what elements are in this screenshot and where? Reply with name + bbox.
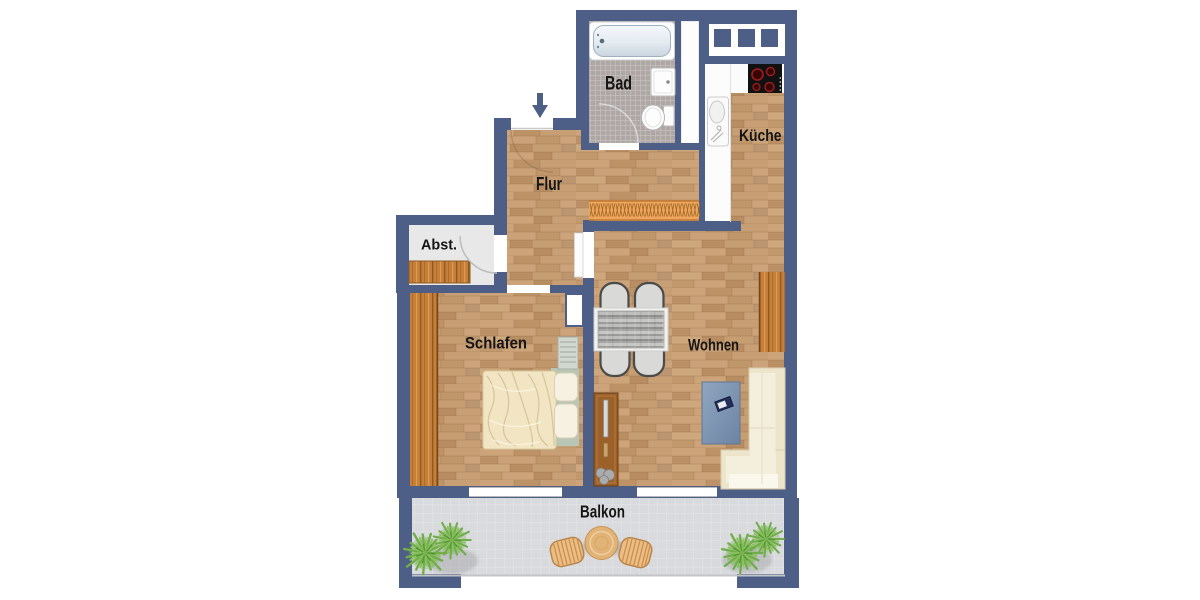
svg-text:Schlafen: Schlafen [465, 334, 527, 353]
svg-text:Wohnen: Wohnen [688, 336, 739, 355]
svg-text:Küche: Küche [739, 127, 782, 145]
svg-text:Flur: Flur [536, 174, 562, 194]
svg-text:Balkon: Balkon [580, 502, 625, 522]
svg-text:Abst.: Abst. [421, 238, 457, 254]
svg-text:Bad: Bad [605, 74, 632, 95]
